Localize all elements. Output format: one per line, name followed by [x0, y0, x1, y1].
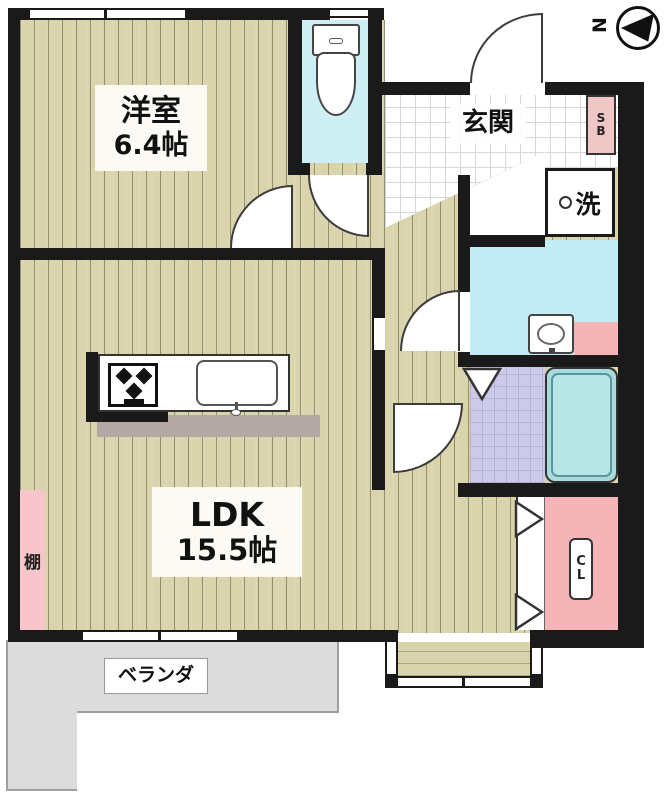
bedroom-label: 洋室 6.4帖: [95, 85, 207, 171]
wall-bottom-right: [530, 630, 644, 648]
ldk-area: 15.5帖: [177, 534, 278, 567]
washing-machine-icon: [559, 196, 572, 209]
wall-bottom-mid: [237, 630, 398, 642]
compass-north-label: N: [589, 17, 611, 33]
veranda-name: ベランダ: [118, 665, 194, 687]
closet-letter-l: L: [577, 569, 585, 583]
ldk-name: LDK: [190, 496, 264, 534]
wall-toilet-bottom-right: [366, 163, 382, 175]
faucet-knob-icon: [231, 409, 241, 416]
bathroom-folding-door-icon: [462, 367, 502, 401]
stove-icon: [108, 363, 158, 407]
washbasin-icon: [528, 314, 574, 354]
entrance-door-swing: [470, 13, 543, 83]
wall-toilet-left: [288, 18, 302, 175]
north-arrow-icon: [616, 6, 660, 50]
shelf-label: 棚: [24, 548, 41, 573]
shoe-box: S B: [586, 95, 616, 155]
wall-top-mid: [185, 8, 330, 20]
bedroom-area: 6.4帖: [114, 130, 189, 161]
entrance-name: 玄関: [462, 109, 514, 139]
closet-label-box: C L: [569, 538, 593, 600]
wall-bedroom-ldk: [8, 248, 385, 260]
laundry-label: 洗: [575, 185, 600, 221]
bay-post-left: [385, 674, 398, 688]
wall-hall-washarea: [458, 175, 470, 292]
shoebox-letter-b: B: [596, 125, 605, 138]
closet-folding-door-icon: [514, 500, 544, 538]
wall-washroom-top: [458, 235, 545, 247]
washbasin-counter: [574, 322, 618, 355]
ldk-label: LDK 15.5帖: [152, 487, 302, 577]
wall-bottom-left: [8, 630, 83, 642]
veranda-window-mullion: [158, 632, 161, 640]
wall-niche: [374, 318, 385, 350]
bay-window-mullion: [462, 678, 465, 687]
entrance-label: 玄関: [450, 104, 526, 144]
bedroom-window: [30, 8, 185, 20]
sink-icon: [196, 360, 278, 406]
veranda-label: ベランダ: [104, 658, 208, 694]
bay-side-wall-right: [530, 648, 543, 674]
bay-side-wall-left: [385, 642, 398, 674]
wall-toilet-right: [368, 18, 382, 175]
bathtub-icon: [545, 367, 618, 483]
wall-toilet-bottom-left: [288, 163, 310, 175]
wall-left: [8, 8, 20, 642]
floorplan-canvas: 棚: [0, 0, 666, 800]
wall-ldk-hallway: [372, 258, 385, 490]
bedroom-window-mullion: [104, 10, 107, 18]
wall-right: [618, 82, 644, 648]
bay-post-right: [530, 674, 543, 688]
wall-bathroom-top: [458, 355, 618, 367]
bedroom-name: 洋室: [121, 95, 181, 130]
closet-letter-c: C: [576, 555, 586, 569]
toilet-window: [330, 8, 368, 18]
wall-bathroom-bottom: [458, 483, 618, 497]
bay-window-floor: [396, 642, 532, 676]
laundry-area: 洗: [545, 168, 615, 237]
wall-entrance-top-left: [382, 82, 470, 95]
shelf-area: 棚: [20, 490, 45, 630]
closet-folding-door-icon: [514, 593, 544, 631]
